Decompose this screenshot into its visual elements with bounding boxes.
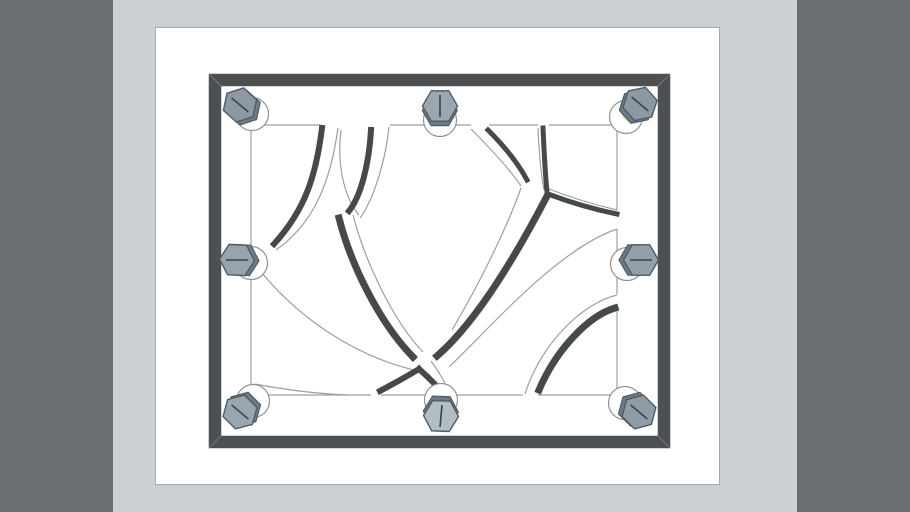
hex-bolts	[220, 87, 659, 431]
slot-outline-curve	[255, 384, 348, 395]
model-viewport[interactable]	[0, 0, 910, 512]
model-drawing	[0, 0, 910, 512]
slot-shadow-curve	[339, 218, 413, 357]
hex-bolt-bottom-right	[609, 387, 656, 429]
hex-bolt-top-center	[422, 91, 457, 137]
slot-shadow-curve	[543, 128, 547, 192]
slot-shadow-curve	[380, 369, 419, 391]
hex-bolt-top-right	[610, 87, 658, 133]
hex-bolt-bottom-left	[223, 385, 269, 429]
hex-bolt-mid-left	[220, 244, 268, 279]
hex-bolt-bottom-center	[423, 384, 458, 432]
slot-shadow-curve	[539, 308, 615, 390]
slot-shadow-curve	[274, 128, 322, 244]
slot-outline-curve	[254, 263, 418, 371]
hex-bolt-mid-right	[611, 245, 659, 281]
slot-shadow-curve	[548, 194, 617, 214]
slot-shadow-curve	[437, 198, 546, 356]
slot-outline-curve	[449, 229, 617, 367]
hex-bolt-top-left	[223, 88, 268, 131]
slot-shadow-curve	[349, 130, 371, 211]
slot-shadow-curve	[488, 130, 527, 180]
slot-outline-curve	[540, 310, 617, 392]
slot-shadows	[274, 128, 617, 391]
